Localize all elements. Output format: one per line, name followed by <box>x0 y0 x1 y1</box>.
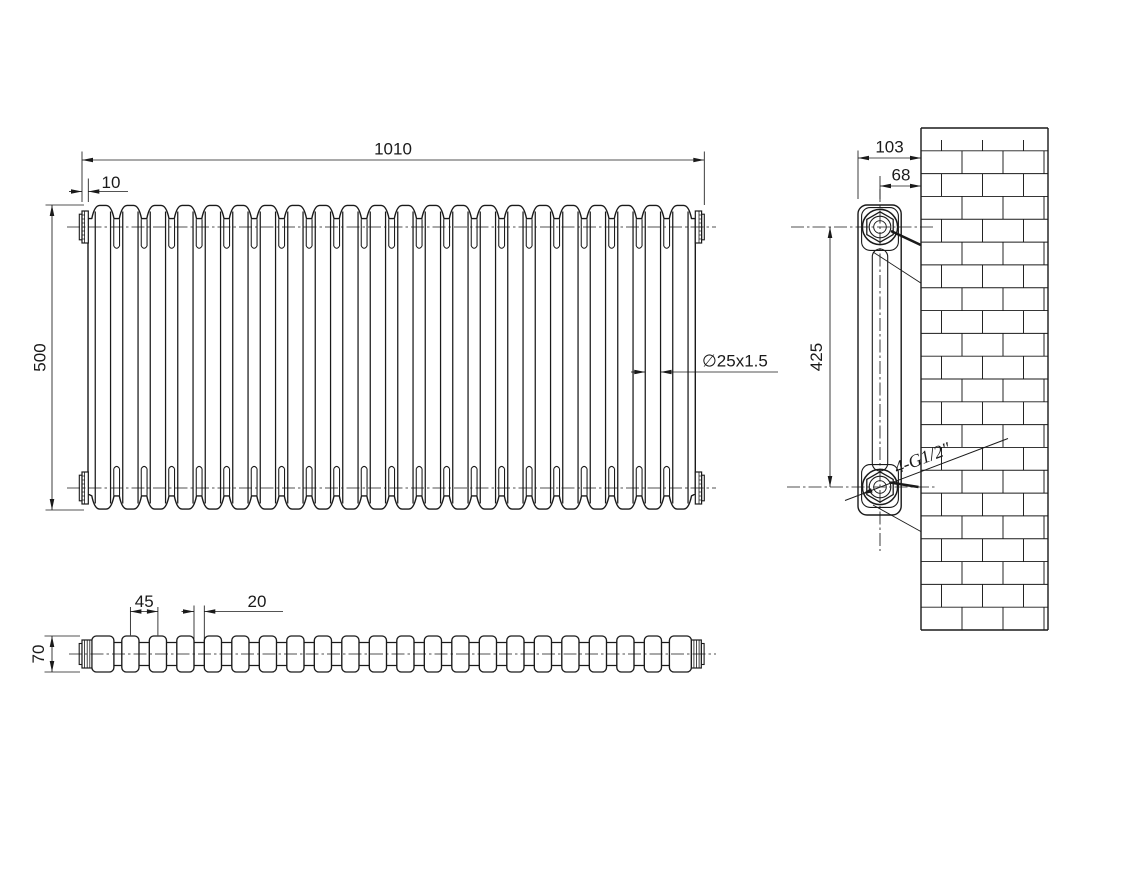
dim-section-pitch-label: 45 <box>135 592 154 611</box>
arrow-20-right <box>204 609 215 614</box>
dim-overall-height-label: 500 <box>31 343 50 371</box>
arrow-10-right <box>88 189 99 194</box>
arrow-1010-right <box>693 158 704 163</box>
radiator-technical-drawing: 1010 10 500 ∅25x1.5 103 68 425 4-G1/2" 4… <box>0 0 1126 895</box>
arrow-103-left <box>858 156 869 161</box>
arrow-500-bottom <box>50 499 55 510</box>
arrow-68-right <box>910 184 921 189</box>
arrow-70-bottom <box>50 661 55 672</box>
arrow-1010-left <box>82 158 93 163</box>
arrow-70-top <box>50 636 55 647</box>
side-view <box>787 128 1048 630</box>
arrow-68-left <box>880 184 891 189</box>
arrow-103-right <box>910 156 921 161</box>
drawing-sheet: 1010 10 500 ∅25x1.5 103 68 425 4-G1/2" 4… <box>0 0 1126 895</box>
arrow-10-left <box>71 189 82 194</box>
dim-column-tube-label: ∅25x1.5 <box>702 352 768 371</box>
arrow-20-left <box>183 609 194 614</box>
dim-depth-label: 70 <box>29 645 48 664</box>
dim-depth-to-wall-label: 103 <box>875 138 903 157</box>
arrow-500-top <box>50 205 55 216</box>
arrow-425-top <box>828 227 833 238</box>
front-view <box>46 152 779 511</box>
plan-view <box>45 606 717 673</box>
dim-column-gap-label: 20 <box>248 592 267 611</box>
dim-overall-width-label: 1010 <box>374 140 412 159</box>
arrow-425-bottom <box>828 476 833 487</box>
dim-end-plug-offset-label: 10 <box>102 173 121 192</box>
dim-center-to-wall-label: 68 <box>892 166 911 185</box>
radiator-front-outline <box>88 205 695 509</box>
dim-tapping-centers-label: 425 <box>807 343 826 371</box>
